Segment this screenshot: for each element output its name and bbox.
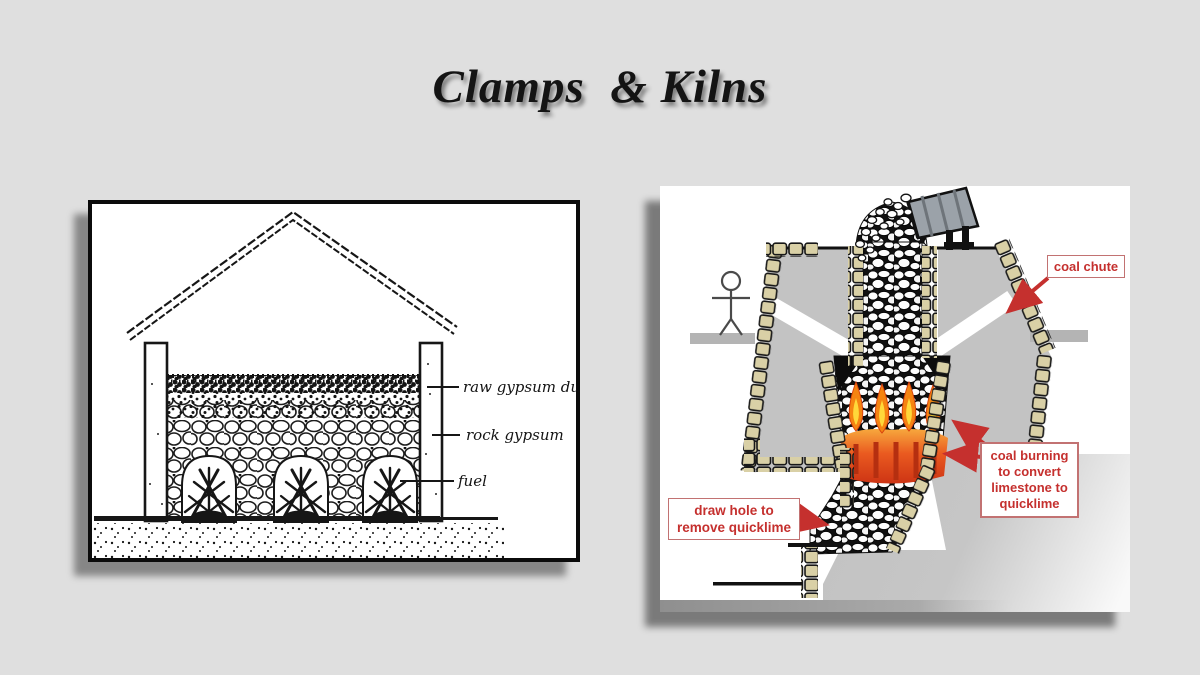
coal-burning-label: coal burning to convert limestone to qui…	[980, 442, 1079, 518]
bottom-shade	[660, 600, 1130, 612]
draw-hole-step	[801, 546, 818, 598]
draw-hole-label: draw hole to remove quicklime	[668, 498, 800, 540]
coal-burning-line1: coal burning	[984, 448, 1075, 464]
draw-hole-line1: draw hole to	[669, 502, 799, 519]
ground-bar-left	[690, 333, 755, 344]
clamp-diagram: raw gypsum dust rock gypsum fuel	[88, 200, 580, 562]
label-rock-gypsum: rock gypsum	[466, 426, 564, 444]
firing-arches	[182, 456, 417, 522]
coal-burning-line4: quicklime	[984, 496, 1075, 512]
kiln-drawing	[660, 186, 1130, 612]
coal-chute-label-text: coal chute	[1048, 259, 1124, 274]
kiln-diagram: coal chute coal burning to convert limes…	[660, 186, 1130, 612]
label-fuel: fuel	[457, 472, 487, 490]
coal-burning-line2: to convert	[984, 464, 1075, 480]
coal-chute-label: coal chute	[1047, 255, 1125, 278]
slide: Clamps & Kilns	[0, 0, 1200, 675]
label-raw-gypsum-dust: raw gypsum dust	[463, 378, 576, 396]
draw-hole-line2: remove quicklime	[669, 519, 799, 536]
clamp-drawing: raw gypsum dust rock gypsum fuel	[92, 204, 576, 558]
coal-burning-line3: limestone to	[984, 480, 1075, 496]
page-title: Clamps & Kilns	[0, 60, 1200, 114]
clamp-roof	[127, 212, 457, 340]
person-figure	[712, 272, 750, 335]
